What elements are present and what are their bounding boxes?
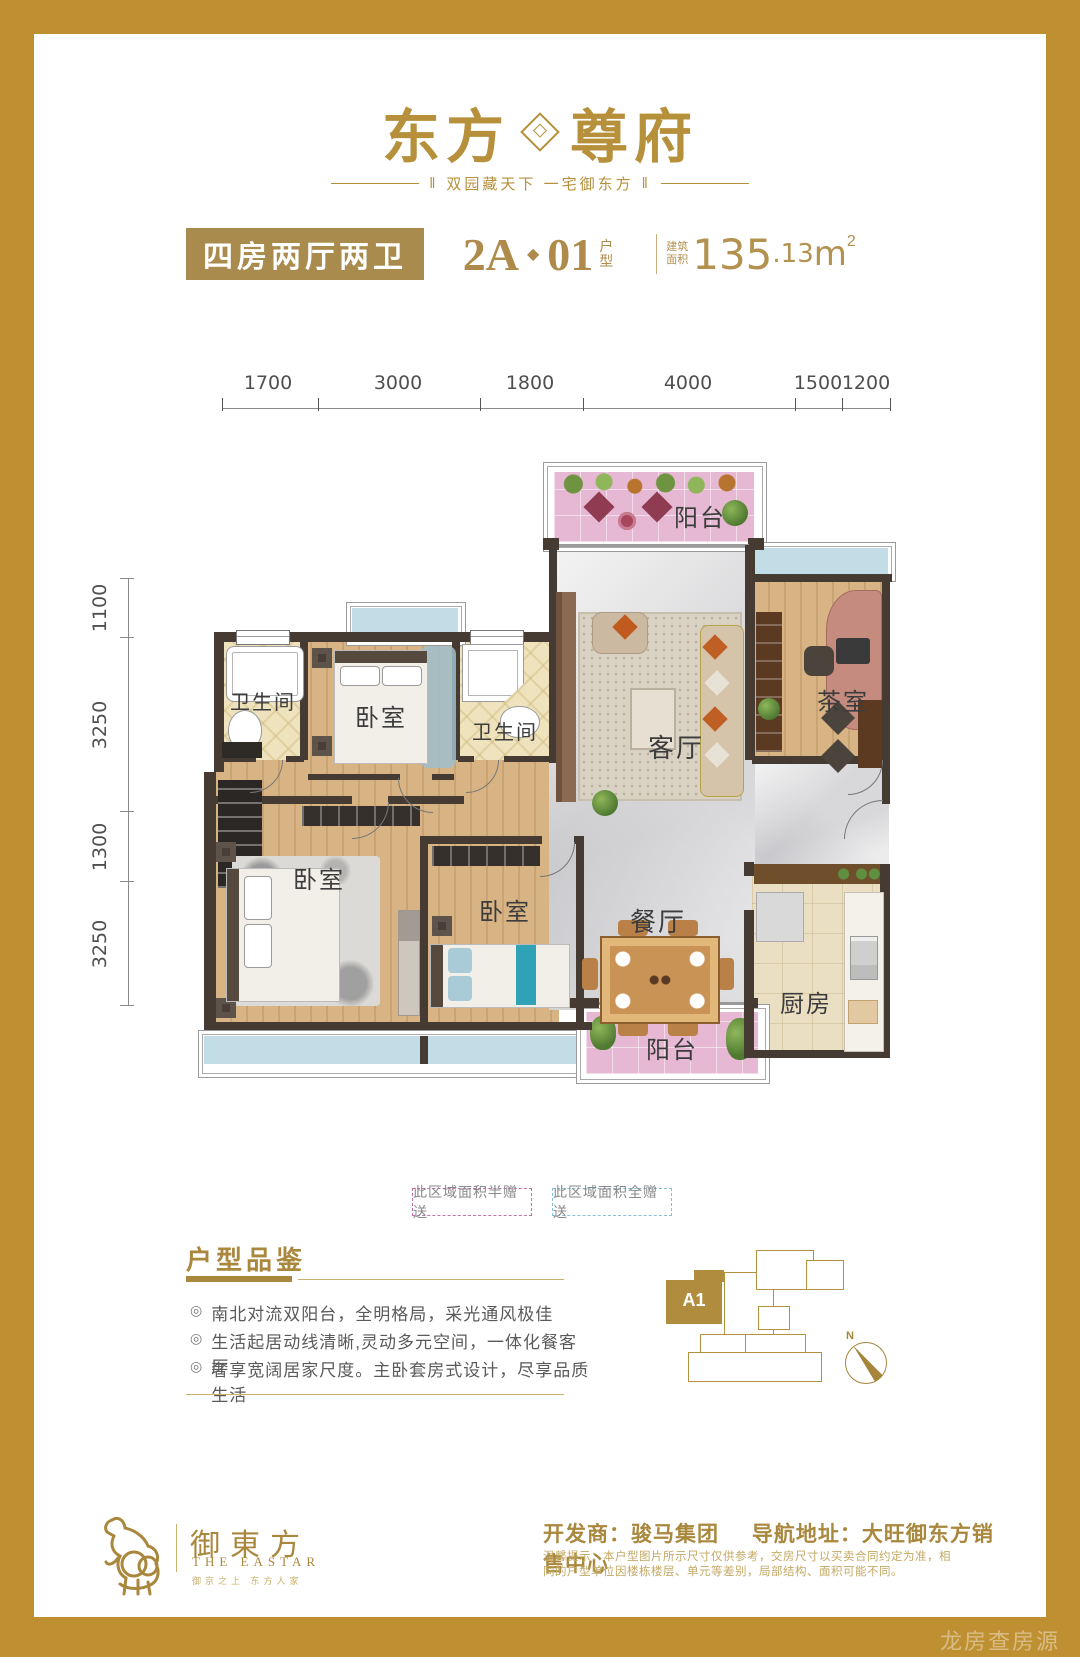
dim-tick-h (120, 578, 134, 579)
pillow (244, 924, 272, 968)
pillow (448, 976, 472, 1001)
tagline-line-right (661, 183, 749, 184)
dim-tick (480, 398, 481, 411)
tv-cabinet (556, 592, 576, 802)
area-unit: m (814, 234, 847, 274)
review-bullet-1: ◎ 南北对流双阳台，全明格局，采光通风极佳 (190, 1300, 590, 1325)
keyplan-unit-label: A1 (666, 1290, 722, 1311)
developer-label: 开发商： (543, 1523, 631, 1546)
dresser (398, 910, 420, 1016)
wall (420, 836, 428, 1030)
bay-bottom (204, 1036, 584, 1064)
pillow (340, 666, 380, 686)
wall (432, 774, 454, 780)
footer-logo-divider (176, 1524, 177, 1572)
desk-monitor (836, 638, 870, 664)
plant (592, 790, 618, 816)
wall (576, 836, 584, 1022)
unit-type-label: 四房两厅两卫 (203, 232, 407, 276)
room-label-dining: 餐厅 (618, 902, 698, 939)
nightstand (312, 736, 332, 756)
room-label-bath-2: 卫生间 (458, 716, 552, 745)
dim-tick (890, 398, 891, 411)
tagline-line-left (331, 183, 419, 184)
pillow (448, 948, 472, 973)
bay-tea (754, 548, 888, 574)
keyplan-block (688, 1352, 822, 1382)
room-label-kitchen: 厨房 (766, 984, 846, 1019)
review-bottom-rule (186, 1394, 564, 1395)
dim-left-1100: 1100 (89, 580, 111, 636)
wall (428, 836, 542, 844)
review-title-underline (186, 1276, 292, 1282)
keyplan-block (758, 1306, 790, 1330)
plant (758, 698, 780, 720)
dim-tick-h (120, 881, 134, 882)
bullet-icon: ◎ (190, 1358, 203, 1375)
dim-top-4000: 4000 (648, 372, 728, 394)
room-label-balcony-top: 阳台 (660, 498, 740, 533)
area-superscript: 2 (847, 233, 856, 251)
dim-left-1300: 1300 (89, 819, 111, 875)
bay-bottom-divider (420, 1036, 428, 1064)
review-title: 户型品鉴 (186, 1240, 306, 1277)
kitchen-shelf (754, 864, 882, 884)
bullet-icon: ◎ (190, 1330, 203, 1347)
room-label-bedroom-b: 卧室 (276, 860, 362, 895)
footer-disclaimer: 温馨提示：本户型图片所示尺寸仅供参考，交房尺寸以买卖合同约定为准，相同的户型单位… (543, 1550, 955, 1580)
wall (308, 774, 400, 780)
sliding-door (559, 544, 749, 547)
dim-top-1200: 1200 (836, 372, 896, 394)
dim-tick (583, 398, 584, 411)
bed-runner (516, 945, 536, 1005)
wall (882, 764, 890, 804)
wall (745, 545, 755, 760)
dim-left-3250: 3250 (89, 697, 111, 753)
unit-type-box: 四房两厅两卫 (186, 228, 424, 280)
wall (204, 772, 216, 1030)
dim-top-line (222, 408, 890, 409)
kitchen-sink (850, 936, 878, 980)
dining-chair (718, 958, 734, 990)
wall (504, 756, 552, 762)
wall (744, 910, 754, 1058)
legend-full-gift: 此区域面积全赠送 (552, 1188, 672, 1216)
brand-tagline-row: ‖ 双园藏天下 一宅御东方 ‖ (240, 172, 840, 194)
bullet-icon: ◎ (190, 1302, 203, 1319)
frame-left (0, 0, 34, 1657)
developer-value: 骏马集团 (631, 1523, 719, 1546)
brand-ornament-inner (533, 124, 547, 138)
unit-code-box: 2A ◆ 01 户 型 (424, 228, 652, 280)
review-title-rule (298, 1279, 564, 1280)
keyplan-unit-a1-notch (694, 1270, 724, 1282)
area-decimal: .13 (772, 239, 813, 269)
dim-top-1700: 1700 (228, 372, 308, 394)
pillow (244, 876, 272, 920)
wall (748, 574, 892, 582)
room-label-bedroom-c: 卧室 (462, 892, 548, 927)
tagline-deco-left: ‖ (429, 175, 438, 192)
title-divider (656, 234, 657, 274)
dim-left-3250-b: 3250 (89, 916, 111, 972)
compass-n-label: N (846, 1330, 854, 1342)
footer-brand-en: THE EASTAR (192, 1554, 320, 1570)
room-label-bath-1: 卫生间 (220, 686, 306, 715)
dim-tick (842, 398, 843, 411)
wall (543, 538, 559, 550)
room-label-bedroom-a: 卧室 (338, 698, 424, 733)
dim-tick-h (120, 811, 134, 812)
legend-half-gift: 此区域面积半赠送 (412, 1188, 532, 1216)
desk-chair (804, 646, 834, 676)
bookshelf (756, 612, 782, 752)
room-label-tea: 茶室 (808, 682, 878, 717)
keyplan-block (806, 1260, 844, 1290)
footer-slogan: 御京之上 东方人家 (192, 1574, 303, 1587)
frame-bottom (0, 1617, 1080, 1657)
area-label: 建筑 面积 (666, 241, 688, 267)
frame-top (0, 0, 1080, 34)
cutting-board (848, 1000, 878, 1024)
unit-code-left: 2A (463, 228, 519, 281)
dim-top-1800: 1800 (490, 372, 570, 394)
frame-right (1046, 0, 1080, 1657)
dim-top-3000: 3000 (358, 372, 438, 394)
dining-chair (582, 958, 598, 990)
area-box: 建筑 面积 135 .13 m 2 (658, 228, 864, 280)
wall (286, 756, 304, 762)
dining-table (600, 936, 720, 1024)
brand-right-text: 尊府 (570, 90, 698, 174)
watermark: 龙房查房源 (940, 1624, 1060, 1656)
unit-code-separator-icon: ◆ (527, 244, 539, 264)
window (236, 630, 290, 645)
balcony-table (618, 512, 636, 530)
brand-tagline: 双园藏天下 一宅御东方 (446, 173, 633, 194)
area-value: 135 (692, 230, 772, 279)
nav-label: 导航地址： (752, 1523, 862, 1546)
nightstand (216, 842, 236, 862)
window (470, 630, 524, 645)
wall (882, 574, 890, 766)
tagline-deco-right: ‖ (642, 175, 651, 192)
bath-vanity (222, 742, 262, 758)
brand-left-text: 东方 (382, 90, 510, 174)
wall (744, 862, 754, 876)
balcony-top-plants (558, 473, 750, 495)
horse-logo-icon (98, 1514, 166, 1598)
floorplan-poster: 东方 尊府 ‖ 双园藏天下 一宅御东方 ‖ 四房两厅两卫 2A ◆ 01 户 型… (0, 0, 1080, 1657)
dim-left-line (128, 578, 129, 1005)
nightstand (312, 648, 332, 668)
room-label-living: 客厅 (636, 728, 716, 765)
nightstand (432, 916, 452, 936)
dim-tick (795, 398, 796, 411)
dim-tick (318, 398, 319, 411)
brand-logo: 东方 尊府 (240, 96, 840, 168)
dim-tick-h (120, 1005, 134, 1006)
unit-suffix: 户 型 (599, 239, 613, 269)
unit-code-right: 01 (547, 228, 593, 281)
dim-tick-h (120, 637, 134, 638)
dim-tick (222, 398, 223, 411)
wardrobe (432, 846, 540, 866)
wall (204, 1022, 592, 1030)
brand-ornament-icon (520, 112, 560, 152)
fridge (756, 892, 804, 942)
pillow (382, 666, 422, 686)
review-bullet-3: ◎ 奢享宽阔居家尺度。主卧套房式设计，尽享品质生活 (190, 1356, 590, 1406)
